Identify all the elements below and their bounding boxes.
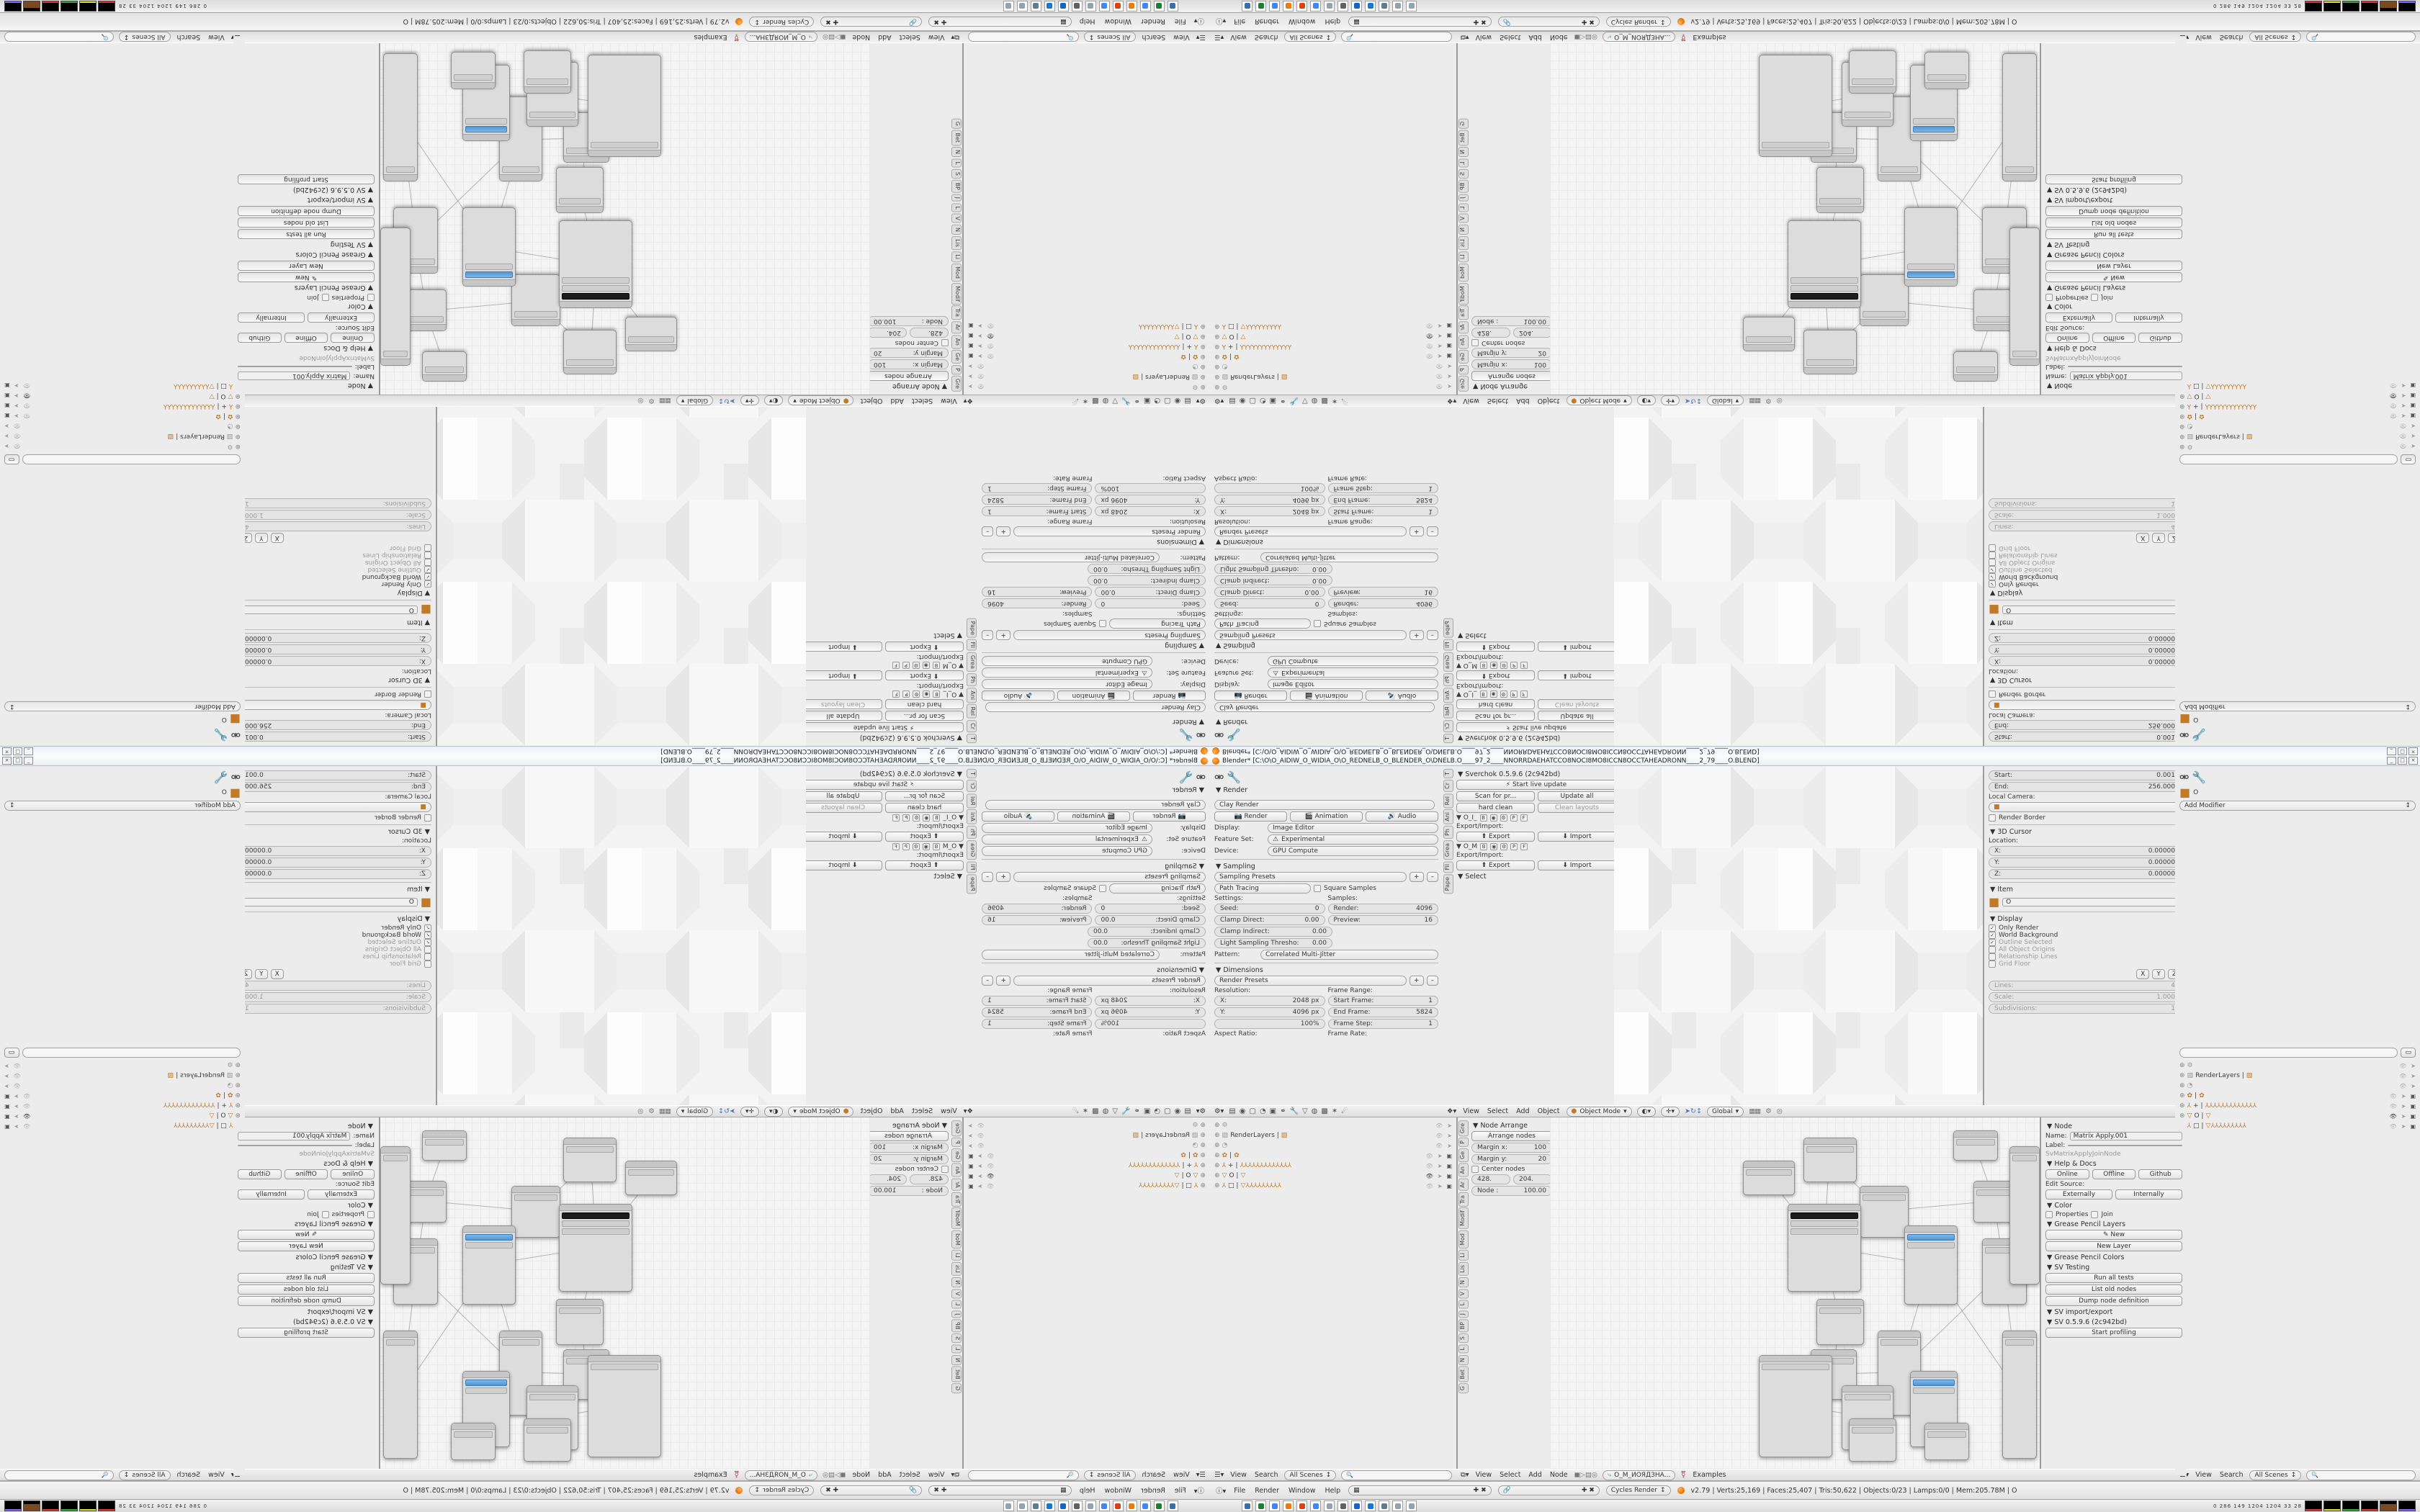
node-shelf-tab[interactable]: Tra: [1458, 306, 1469, 320]
select-icon[interactable]: ➤: [968, 384, 973, 390]
tree-type-icons[interactable]: ◼▷▤◎: [1574, 1471, 1597, 1479]
help-menu[interactable]: Help: [1078, 1487, 1097, 1495]
hide-icon[interactable]: 👁: [23, 383, 30, 390]
hide-icon[interactable]: 👁: [1426, 343, 1433, 350]
arrange-val2-slider[interactable]: 204.: [868, 1174, 907, 1184]
resolution-y-slider[interactable]: Y:4096 px: [1095, 495, 1206, 505]
node-shelf-tab[interactable]: J: [951, 194, 962, 202]
display-option-checkbox[interactable]: Relationship Lines: [239, 552, 431, 559]
snap-icon[interactable]: ⚙: [648, 1107, 655, 1115]
margin-y-slider[interactable]: Margin y:20: [1471, 348, 1552, 358]
sverchok-node[interactable]: [1743, 1161, 1795, 1195]
preset-add-button[interactable]: +: [1410, 872, 1424, 882]
node-shelf-tab[interactable]: L: [1458, 158, 1469, 167]
render-tab-icon[interactable]: ◉: [1240, 397, 1246, 405]
properties-editor-type-icon[interactable]: ⚙▾: [1196, 1107, 1206, 1115]
clamp-direct-slider[interactable]: Clamp Direct:0.00: [1214, 915, 1325, 925]
outliner-row[interactable]: ⊕✿|✿👁➤▣: [4, 411, 241, 421]
expand-icon[interactable]: ⊕: [2179, 433, 2185, 440]
sverchok-node[interactable]: [1904, 1225, 1958, 1305]
preset-remove-button[interactable]: –: [982, 872, 994, 882]
end-frame-slider[interactable]: End Frame:5824: [1328, 1007, 1439, 1017]
expand-icon[interactable]: ⊕: [1214, 333, 1220, 340]
select-icon[interactable]: ➤: [2401, 403, 2406, 410]
node-header[interactable]: [564, 1138, 616, 1145]
select-panel-title[interactable]: ▼ Select: [804, 631, 962, 639]
group-flag-button[interactable]: B: [1480, 662, 1487, 669]
item-panel-title[interactable]: ▼ Item: [1990, 886, 2181, 894]
group-flag-button[interactable]: ⚙: [1500, 814, 1507, 822]
wrench-icon-2[interactable]: 🔧: [2192, 728, 2206, 742]
outliner-row[interactable]: ⊕⅄□ |▽⅄⅄⅄⅄⅄⅄⅄⅄⅄👁➤▣: [1214, 321, 1452, 331]
render-panel-title[interactable]: ▼ Render: [982, 718, 1204, 726]
node-shelf-tab[interactable]: Li: [951, 1250, 962, 1261]
expand-icon[interactable]: ⊕: [1200, 1172, 1206, 1179]
outliner1-menu-view[interactable]: View: [1229, 1471, 1248, 1479]
node-header[interactable]: [2010, 1147, 2039, 1153]
viewport-editor-type-icon[interactable]: ❖▾: [1447, 397, 1456, 405]
info-editor-type-icon[interactable]: ⓘ▾: [1194, 1485, 1204, 1495]
hide-icon[interactable]: 👁: [23, 403, 30, 410]
constraints-tab-icon[interactable]: ⚭: [1280, 397, 1286, 405]
group-name[interactable]: ▼ O_M: [1456, 662, 1477, 669]
shelf-tab[interactable]: Cr: [1443, 780, 1453, 792]
grid-scale-slider[interactable]: Scale:1.000: [1989, 992, 2181, 1002]
outliner2-search-field[interactable]: 🔍: [2306, 32, 2416, 42]
taskbar-icon-display-app[interactable]: [1242, 1500, 1252, 1511]
hide-icon[interactable]: 👁: [23, 1123, 30, 1130]
select-icon[interactable]: ➤: [978, 1163, 983, 1169]
node-shelf-tab[interactable]: S: [951, 169, 962, 179]
world-tab-icon[interactable]: ◔: [1154, 1107, 1160, 1115]
dim-preset-add-button[interactable]: +: [997, 976, 1011, 986]
edit-source-internally-button[interactable]: Internally: [238, 312, 305, 323]
outliner2-search-field[interactable]: 🔍: [4, 32, 114, 42]
outliner-row[interactable]: ⊕▧RenderLayers |▧👁➤: [968, 1130, 1206, 1140]
select-icon[interactable]: ➤: [1447, 1133, 1452, 1139]
node-shelf-tab[interactable]: Ge: [1458, 350, 1469, 364]
node-menu-node[interactable]: Node: [851, 1471, 871, 1479]
maximize-button[interactable]: □: [13, 747, 22, 755]
display-option-checkbox[interactable]: All Object Origins: [1989, 946, 2181, 953]
node-shelf-tab[interactable]: An: [951, 1164, 962, 1177]
dump-node-definition-button[interactable]: Dump node definition: [2045, 206, 2182, 216]
screen-layout-selector[interactable]: ▦ ✚ ✖: [1348, 1485, 1491, 1495]
cursor-z-field[interactable]: Z:0.00000: [239, 869, 431, 879]
particles-tab-icon[interactable]: ✶: [1083, 397, 1088, 405]
clamp-indirect-slider[interactable]: Clamp Indirect:0.00: [1088, 927, 1206, 937]
audio-button[interactable]: 🔊 Audio: [1366, 811, 1438, 822]
outliner1-menu-view[interactable]: View: [1172, 33, 1191, 41]
gp-layers-title[interactable]: ▼ Grease Pencil Layers: [2047, 1220, 2182, 1228]
hide-icon[interactable]: 👁: [2399, 1073, 2406, 1079]
node-arrange-title[interactable]: ▼ Node Arrange: [1473, 382, 1552, 390]
node-label-field[interactable]: [2068, 1145, 2182, 1146]
cursor-z-field[interactable]: Z:0.00000: [1989, 869, 2181, 879]
gp-layers-title[interactable]: ▼ Grease Pencil Layers: [238, 1220, 373, 1228]
arrange-val2-slider[interactable]: 204.: [868, 328, 907, 338]
square-samples-checkbox[interactable]: Square Samples: [1314, 620, 1376, 627]
select-icon[interactable]: ➤: [14, 413, 19, 420]
select-icon[interactable]: ➤: [1447, 364, 1452, 370]
hide-icon[interactable]: 👁: [23, 1093, 30, 1099]
render-panel-title[interactable]: ▼ Render: [982, 786, 1204, 794]
expand-icon[interactable]: ⊕: [2179, 402, 2185, 410]
filter-funnel-icon[interactable]: ▭: [2401, 454, 2416, 464]
sampling-presets-box[interactable]: Sampling Presets: [1013, 630, 1206, 640]
outliner-row[interactable]: ⊕▽O |▽👁➤▣: [968, 331, 1206, 341]
taskbar-icon-speaker[interactable]: [1337, 1500, 1348, 1511]
node-shelf-tab[interactable]: P: [1458, 1138, 1469, 1147]
outliner1-search-field[interactable]: 🔍: [1341, 1470, 1452, 1480]
expand-icon[interactable]: ⊕: [235, 1062, 241, 1069]
bug-icon[interactable]: ⚧: [1680, 1471, 1686, 1479]
sverchok-node[interactable]: [556, 167, 604, 213]
shelf-tab[interactable]: Fil: [967, 861, 977, 873]
viewport-canvas[interactable]: [437, 766, 806, 1105]
node-shelf-tab[interactable]: Tra: [951, 1192, 962, 1207]
outliner2-scope-select[interactable]: All Scenes ↕: [2249, 1470, 2301, 1480]
taskbar-icon-green-app[interactable]: [1255, 1, 1266, 12]
outliner1-search-field[interactable]: 🔍: [968, 32, 1079, 42]
expand-icon[interactable]: ⊕: [1214, 353, 1220, 360]
node-tree-name-field[interactable]: ⤷O_M_ИОЯДЗНА...: [745, 32, 817, 42]
select-icon[interactable]: ➤: [978, 343, 983, 350]
render-tab-icon[interactable]: ◉: [1175, 1107, 1181, 1115]
hide-icon[interactable]: 👁: [977, 1122, 985, 1129]
node-header[interactable]: [1817, 206, 1863, 212]
preset-add-button[interactable]: +: [997, 630, 1011, 640]
texture-tab-icon[interactable]: ▩: [1092, 397, 1098, 405]
node-header[interactable]: [512, 1187, 560, 1193]
clean-layouts-button[interactable]: Clean layouts: [804, 803, 882, 813]
shelf-tab[interactable]: Ani: [967, 688, 977, 703]
taskbar-icon-chrome[interactable]: [1140, 1500, 1151, 1511]
select-icon[interactable]: ➤: [1438, 343, 1443, 350]
taskbar-icon-spiral-app[interactable]: [1113, 1500, 1124, 1511]
select-icon[interactable]: ➤: [2401, 1093, 2406, 1099]
file-menu[interactable]: File: [1232, 1487, 1247, 1495]
start-live-update-button[interactable]: ⚡ Start live update: [804, 722, 964, 732]
select-icon[interactable]: ➤: [968, 1122, 973, 1129]
render-samples-slider[interactable]: Render:4096: [1328, 598, 1439, 608]
pin-icon-2[interactable]: ⚮: [2179, 770, 2189, 784]
render-restrict-icon[interactable]: ▣: [1446, 1153, 1452, 1159]
node-header[interactable]: [463, 1226, 515, 1233]
outliner1-scope-select[interactable]: All Scenes ↕: [1084, 32, 1136, 42]
select-icon[interactable]: ➤: [14, 1093, 19, 1099]
square-samples-checkbox[interactable]: Square Samples: [1044, 620, 1106, 627]
taskbar-icon-green-app[interactable]: [1255, 1500, 1266, 1511]
grid-scale-slider[interactable]: Scale:1.000: [1989, 510, 2181, 520]
render-restrict-icon[interactable]: ▣: [1446, 1163, 1452, 1169]
node-menu-view[interactable]: View: [927, 33, 946, 41]
outliner1-menu-search[interactable]: Search: [1253, 1471, 1280, 1479]
end-frame-slider[interactable]: End Frame:5824: [982, 495, 1093, 505]
shelf-tab[interactable]: Rel: [967, 793, 977, 808]
node-shelf-tab[interactable]: Ar: [1458, 1179, 1469, 1191]
pin-icon-2[interactable]: ⚮: [231, 728, 241, 742]
clip-start-slider[interactable]: Start:0.001: [1989, 770, 2181, 780]
light-sampling-threshold-slider[interactable]: Light Sampling Thresho:0.00: [1088, 938, 1206, 948]
display-option-checkbox[interactable]: ✓Outline Selected: [1989, 566, 2181, 573]
center-nodes-checkbox[interactable]: Center nodes: [1471, 339, 1552, 346]
examples-menu[interactable]: Examples: [1691, 33, 1727, 41]
sverchok-node[interactable]: [2009, 228, 2040, 366]
orientation-select[interactable]: Global ▾: [676, 396, 713, 406]
modifiers-tab-icon[interactable]: 🔧: [1290, 397, 1299, 405]
select-icon[interactable]: ➤: [968, 374, 973, 380]
center-nodes-checkbox[interactable]: Center nodes: [1471, 1166, 1552, 1173]
group-flag-button[interactable]: F: [1520, 843, 1528, 850]
viewport-editor-type-icon[interactable]: ❖▾: [964, 397, 973, 405]
sverchok-node[interactable]: [625, 1161, 677, 1195]
outliner-row[interactable]: ⊕⅄□ |▽⅄⅄⅄⅄⅄⅄⅄⅄⅄👁➤▣: [4, 1121, 241, 1131]
taskbar-icon-notepad[interactable]: [1324, 1500, 1335, 1511]
hide-icon[interactable]: 👁: [2399, 1083, 2406, 1089]
node-menu-node[interactable]: Node: [851, 33, 871, 41]
group-name[interactable]: ▼ O_M: [943, 662, 964, 669]
arrange-val1-slider[interactable]: 428.: [910, 1174, 949, 1184]
outliner-row[interactable]: ⊕▽O |▽👁➤▣: [968, 1171, 1206, 1181]
examples-menu[interactable]: Examples: [1691, 1471, 1727, 1479]
select-icon[interactable]: ➤: [2401, 413, 2406, 420]
hide-icon[interactable]: 👁: [987, 1163, 994, 1169]
outliner-row[interactable]: ⊕◔👁➤: [2179, 1081, 2416, 1091]
render-presets-box[interactable]: Render Presets: [1013, 526, 1206, 536]
select-icon[interactable]: ➤: [1447, 1122, 1452, 1129]
arrange-val2-slider[interactable]: 204.: [1513, 328, 1552, 338]
viewport-menu-select[interactable]: Select: [1486, 397, 1510, 405]
minimize-button[interactable]: _: [24, 757, 33, 765]
gp-colors-title[interactable]: ▼ Grease Pencil Colors: [238, 1254, 373, 1261]
render-restrict-icon[interactable]: ▣: [1446, 343, 1452, 350]
taskbar-icon-green-app[interactable]: [1154, 1500, 1165, 1511]
taskbar-icon-notepad-2[interactable]: [1017, 1, 1028, 12]
display-option-checkbox[interactable]: ✓Only Render: [1989, 580, 2181, 588]
color-panel-title[interactable]: ▼ Color: [238, 302, 373, 310]
node-shelf-tab[interactable]: Li: [951, 251, 962, 262]
resolution-percent-slider[interactable]: 100%: [1095, 1019, 1206, 1029]
node-panel-title[interactable]: ▼ Node: [238, 1122, 373, 1130]
clamp-direct-slider[interactable]: Clamp Direct:0.00: [1095, 915, 1206, 925]
clip-end-slider[interactable]: End:256.000: [239, 782, 431, 792]
maximize-button[interactable]: □: [2398, 747, 2407, 755]
help-menu[interactable]: Help: [1078, 18, 1097, 26]
sverchok-node[interactable]: [422, 351, 467, 382]
manipulator-icons[interactable]: ➤↻↕: [718, 1107, 735, 1115]
device-select[interactable]: GPU Compute: [1268, 846, 1438, 856]
render-border-checkbox[interactable]: Render Border: [1989, 814, 2181, 822]
dump-node-definition-button[interactable]: Dump node definition: [2045, 1296, 2182, 1306]
node-shelf-tab[interactable]: L: [1458, 1300, 1469, 1308]
expand-icon[interactable]: ⊕: [1200, 333, 1206, 340]
world-tab-icon[interactable]: ◔: [1260, 397, 1266, 405]
maximize-button[interactable]: □: [2398, 757, 2407, 765]
help-docs-title[interactable]: ▼ Help & Docs: [2047, 1160, 2182, 1168]
gp-colors-title[interactable]: ▼ Grease Pencil Colors: [2047, 1254, 2182, 1261]
cursor-x-field[interactable]: X:0.00000: [239, 656, 431, 666]
shelf-tab[interactable]: Grea: [967, 652, 977, 672]
preset-add-button[interactable]: +: [1410, 630, 1424, 640]
close-button[interactable]: ×: [2408, 747, 2418, 755]
margin-x-slider[interactable]: Margin x:100: [1471, 359, 1552, 369]
grid-axis-x-button[interactable]: X: [2136, 969, 2149, 979]
close-button[interactable]: ×: [2, 757, 12, 765]
feature-set-select[interactable]: ⚠Experimental: [1268, 667, 1438, 678]
orientation-select[interactable]: Global ▾: [676, 1107, 713, 1117]
select-icon[interactable]: ➤: [978, 1173, 983, 1179]
node-header[interactable]: [1850, 1419, 1896, 1426]
taskbar-icon-calculator[interactable]: [1031, 1, 1041, 12]
taskbar-icon-notepad-3[interactable]: [1003, 1, 1014, 12]
pivot-select[interactable]: ✛▾: [1661, 1107, 1680, 1117]
outliner1-scope-select[interactable]: All Scenes ↕: [1284, 32, 1336, 42]
edit-source-externally-button[interactable]: Externally: [2045, 1189, 2112, 1200]
outliner-row[interactable]: ⊕✿|✿👁➤▣: [968, 351, 1206, 361]
node-shelf-tab[interactable]: Tra: [951, 306, 962, 320]
taskbar-icon-notepad-3[interactable]: [1406, 1500, 1417, 1511]
node-shelf-tab[interactable]: N: [1458, 1355, 1469, 1365]
taskbar-icon-floppy-64[interactable]: [1058, 1, 1069, 12]
sverchok-node[interactable]: [559, 1204, 632, 1292]
node-canvas[interactable]: [1550, 43, 2040, 395]
group-flag-button[interactable]: ◉: [1490, 814, 1497, 822]
group-flag-button[interactable]: B: [933, 662, 940, 669]
hard-clean-button[interactable]: hard clean: [1456, 699, 1535, 709]
select-icon[interactable]: ➤: [2411, 444, 2416, 450]
data-tab-icon[interactable]: ▽: [1112, 1107, 1118, 1115]
clip-end-slider[interactable]: End:256.000: [1989, 720, 2181, 730]
frame-step-slider[interactable]: Frame Step:1: [982, 483, 1093, 493]
hard-clean-button[interactable]: hard clean: [885, 699, 964, 709]
select-icon[interactable]: ➤: [1438, 333, 1443, 340]
sverchok-node[interactable]: [2002, 53, 2037, 181]
node-arrange-title[interactable]: ▼ Node Arrange: [1473, 1122, 1552, 1130]
sverchok-panel-title[interactable]: ▼ Sverchok 0.5.9.6 (2c942bd): [804, 734, 962, 742]
taskbar-icon-display-app[interactable]: [1168, 1, 1178, 12]
shelf-tab[interactable]: Grea: [1443, 840, 1453, 860]
hide-icon[interactable]: 👁: [1426, 323, 1433, 330]
properties-tab-icon[interactable]: ▤: [1229, 397, 1235, 405]
expand-icon[interactable]: ⊕: [2179, 1092, 2185, 1099]
grid-subdivisions-slider[interactable]: Subdivisions:1: [239, 498, 431, 508]
group-flag-button[interactable]: F: [892, 690, 900, 698]
group-name[interactable]: ▼ O_I_: [943, 690, 964, 698]
grid-lines-slider[interactable]: Lines:4: [1989, 521, 2181, 531]
help-offline-button[interactable]: Offline: [284, 1169, 328, 1179]
node-shelf-tab[interactable]: Ar: [951, 1179, 962, 1191]
hide-icon[interactable]: 👁: [1435, 1122, 1443, 1129]
group-flag-button[interactable]: B: [1480, 690, 1487, 698]
taskbar-icon-notepad-2[interactable]: [1392, 1, 1403, 12]
render-ogl-icon[interactable]: ◎: [637, 397, 643, 405]
cursor-x-field[interactable]: X:0.00000: [1989, 846, 2181, 856]
group-flag-button[interactable]: F: [1520, 690, 1528, 698]
node-shelf-tab[interactable]: Bet: [1458, 130, 1469, 146]
file-menu[interactable]: File: [1232, 18, 1247, 26]
help-docs-title[interactable]: ▼ Help & Docs: [238, 344, 373, 352]
expand-icon[interactable]: ⊕: [235, 443, 241, 450]
render-restrict-icon[interactable]: ▣: [2410, 393, 2416, 400]
physics-tab-icon[interactable]: ☄: [1341, 1107, 1348, 1115]
grid-axis-x-button[interactable]: X: [271, 533, 284, 543]
gp-layers-title[interactable]: ▼ Grease Pencil Layers: [2047, 284, 2182, 292]
preset-remove-button[interactable]: –: [1427, 872, 1439, 882]
grid-lines-slider[interactable]: Lines:4: [239, 521, 431, 531]
group-flag-button[interactable]: ⚙: [1500, 662, 1507, 669]
sverchok-panel-title[interactable]: ▼ Sverchok 0.5.9.6 (2c942bd): [804, 770, 962, 778]
outliner-row[interactable]: ⊕⅄□ |▽⅄⅄⅄⅄⅄⅄⅄⅄⅄👁➤▣: [2179, 381, 2416, 391]
shelf-tab[interactable]: Cr: [1443, 720, 1453, 732]
filter-funnel-icon[interactable]: ▭: [4, 454, 19, 464]
dim-preset-remove-button[interactable]: –: [1427, 976, 1439, 986]
sampling-panel-title[interactable]: ▼ Sampling: [1216, 642, 1438, 649]
render-restrict-icon[interactable]: ▣: [968, 323, 974, 330]
node-header[interactable]: [1878, 1331, 1920, 1338]
snap-icon[interactable]: ⚙: [1765, 397, 1772, 405]
outliner-row[interactable]: ⊕◔👁➤: [968, 1140, 1206, 1151]
wrench-icon[interactable]: 🔧: [1227, 728, 1241, 742]
sverchok-node[interactable]: [524, 1418, 571, 1462]
sverchok-node[interactable]: [1860, 1186, 1909, 1238]
expand-icon[interactable]: ⊕: [1200, 1152, 1206, 1159]
render-restrict-icon[interactable]: ▣: [4, 413, 10, 420]
node-canvas[interactable]: [1550, 1117, 2040, 1469]
outliner1-editor-type-icon[interactable]: ☰▾: [1214, 33, 1224, 41]
viewport-menu-object[interactable]: Object: [859, 1107, 884, 1115]
sverchok-node[interactable]: [1953, 1130, 1998, 1161]
list-old-nodes-button[interactable]: List old nodes: [2045, 1284, 2182, 1295]
taskbar-icon-green-app[interactable]: [1154, 1, 1165, 12]
local-camera-select[interactable]: ■: [239, 802, 431, 812]
gp-new-button[interactable]: ✎ New: [238, 1230, 375, 1240]
node-shelf-tab[interactable]: V: [1458, 1289, 1469, 1298]
select-icon[interactable]: ➤: [14, 1113, 19, 1120]
update-all-button[interactable]: Update all: [1538, 791, 1616, 801]
group-flag-button[interactable]: B: [933, 814, 940, 822]
render-restrict-icon[interactable]: ▣: [4, 1093, 10, 1099]
node-header[interactable]: [557, 206, 603, 212]
layers-grid-icon[interactable]: ▦▦: [660, 1107, 671, 1115]
item-panel-title[interactable]: ▼ Item: [239, 886, 430, 894]
grid-subdivisions-slider[interactable]: Subdivisions:1: [1989, 1004, 2181, 1014]
item-name-field[interactable]: O: [2002, 898, 2181, 906]
select-icon[interactable]: ➤: [1447, 374, 1452, 380]
import-button[interactable]: ⬇ Import: [1538, 860, 1616, 870]
sverchok-node[interactable]: [1743, 317, 1795, 351]
render-restrict-icon[interactable]: ▣: [2410, 1093, 2416, 1099]
color-panel-title[interactable]: ▼ Color: [238, 1202, 373, 1210]
node-shelf-tab[interactable]: L: [951, 158, 962, 167]
outliner1-editor-type-icon[interactable]: ☰▾: [1196, 1471, 1206, 1479]
node-panel-title[interactable]: ▼ Node: [2047, 382, 2182, 390]
pin-icon[interactable]: ⚮: [1196, 770, 1206, 784]
node-shelf-tab[interactable]: N: [951, 225, 962, 235]
node-shelf-tab[interactable]: V: [951, 214, 962, 223]
grid-lines-slider[interactable]: Lines:4: [1989, 981, 2181, 991]
outliner1-menu-view[interactable]: View: [1229, 33, 1248, 41]
sverchok-node[interactable]: [524, 50, 571, 94]
taskbar-icon-display-app[interactable]: [1168, 1500, 1178, 1511]
sv-version-title[interactable]: ▼ SV 0.5.9.6 (2c942bd): [238, 186, 373, 194]
expand-icon[interactable]: ⊕: [2179, 413, 2185, 420]
display-select[interactable]: Image Editor: [982, 679, 1152, 689]
margin-y-slider[interactable]: Margin y:20: [1471, 1154, 1552, 1164]
help-github-button[interactable]: Github: [2138, 333, 2182, 343]
filter-funnel-icon[interactable]: ▭: [2401, 1048, 2416, 1058]
group-flag-button[interactable]: ⚙: [1500, 690, 1507, 698]
